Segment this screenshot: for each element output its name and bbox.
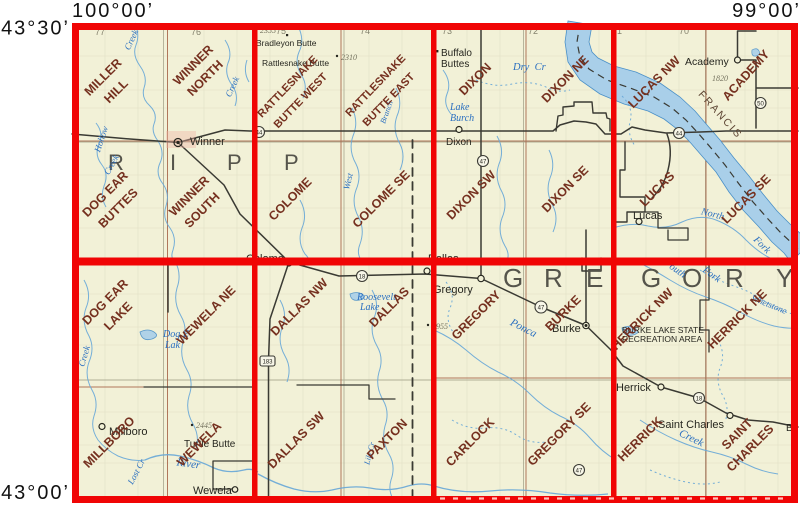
svg-text:47: 47 xyxy=(538,306,545,312)
svg-text:Gregory: Gregory xyxy=(433,284,473,296)
svg-text:183: 183 xyxy=(262,360,273,366)
svg-text:47: 47 xyxy=(576,469,583,475)
svg-text:44: 44 xyxy=(676,132,683,138)
svg-text:99°00’: 99°00’ xyxy=(732,0,800,22)
svg-text:18: 18 xyxy=(696,397,703,403)
svg-text:G: G xyxy=(641,263,661,293)
svg-text:Bradleyon Butte: Bradleyon Butte xyxy=(256,38,317,48)
svg-text:Burch: Burch xyxy=(450,113,474,124)
svg-text:Dry Cr: Dry Cr xyxy=(512,62,547,73)
svg-text:50: 50 xyxy=(757,102,764,108)
svg-text:Buffalo: Buffalo xyxy=(441,48,472,59)
svg-text:Dixon: Dixon xyxy=(446,137,472,148)
svg-text:100°00’: 100°00’ xyxy=(72,0,154,22)
svg-text:I: I xyxy=(170,150,176,175)
svg-text:43°00’: 43°00’ xyxy=(1,482,70,504)
svg-text:R: R xyxy=(544,263,563,293)
svg-text:Winner: Winner xyxy=(190,136,225,148)
svg-text:Herrick: Herrick xyxy=(616,382,651,394)
svg-text:E: E xyxy=(586,263,603,293)
svg-text:Saint Charles: Saint Charles xyxy=(658,419,725,431)
svg-text:Wewela: Wewela xyxy=(193,485,233,497)
svg-text:Academy: Academy xyxy=(685,56,730,68)
svg-text:18: 18 xyxy=(359,275,366,281)
svg-text:P: P xyxy=(284,150,299,175)
svg-text:P: P xyxy=(227,150,242,175)
svg-text:2310: 2310 xyxy=(341,53,357,62)
svg-text:Lucas: Lucas xyxy=(633,210,663,222)
svg-text:O: O xyxy=(682,263,702,293)
svg-text:43°30’: 43°30’ xyxy=(1,18,70,40)
svg-text:Lake: Lake xyxy=(449,102,470,113)
svg-text:Y: Y xyxy=(776,263,793,293)
svg-text:G: G xyxy=(503,263,523,293)
svg-text:R: R xyxy=(725,263,744,293)
svg-text:47: 47 xyxy=(480,160,487,166)
svg-text:Buttes: Buttes xyxy=(441,59,469,70)
svg-text:1820: 1820 xyxy=(712,74,728,83)
